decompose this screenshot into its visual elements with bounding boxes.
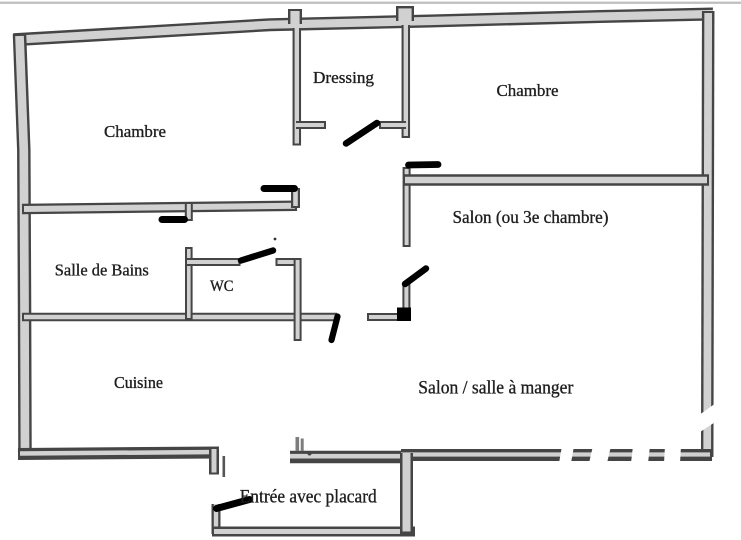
svg-text:Cuisine: Cuisine	[114, 373, 163, 392]
svg-text:Chambre: Chambre	[497, 81, 559, 100]
svg-text:Salon (ou 3e chambre): Salon (ou 3e chambre)	[453, 207, 609, 228]
svg-text:Salon / salle à manger: Salon / salle à manger	[418, 379, 573, 399]
svg-text:Entrée avec placard: Entrée avec placard	[240, 487, 377, 508]
svg-text:Salle de Bains: Salle de Bains	[55, 261, 149, 280]
svg-text:Chambre: Chambre	[104, 122, 166, 141]
svg-text:Dressing: Dressing	[313, 68, 374, 87]
svg-text:WC: WC	[210, 278, 234, 295]
